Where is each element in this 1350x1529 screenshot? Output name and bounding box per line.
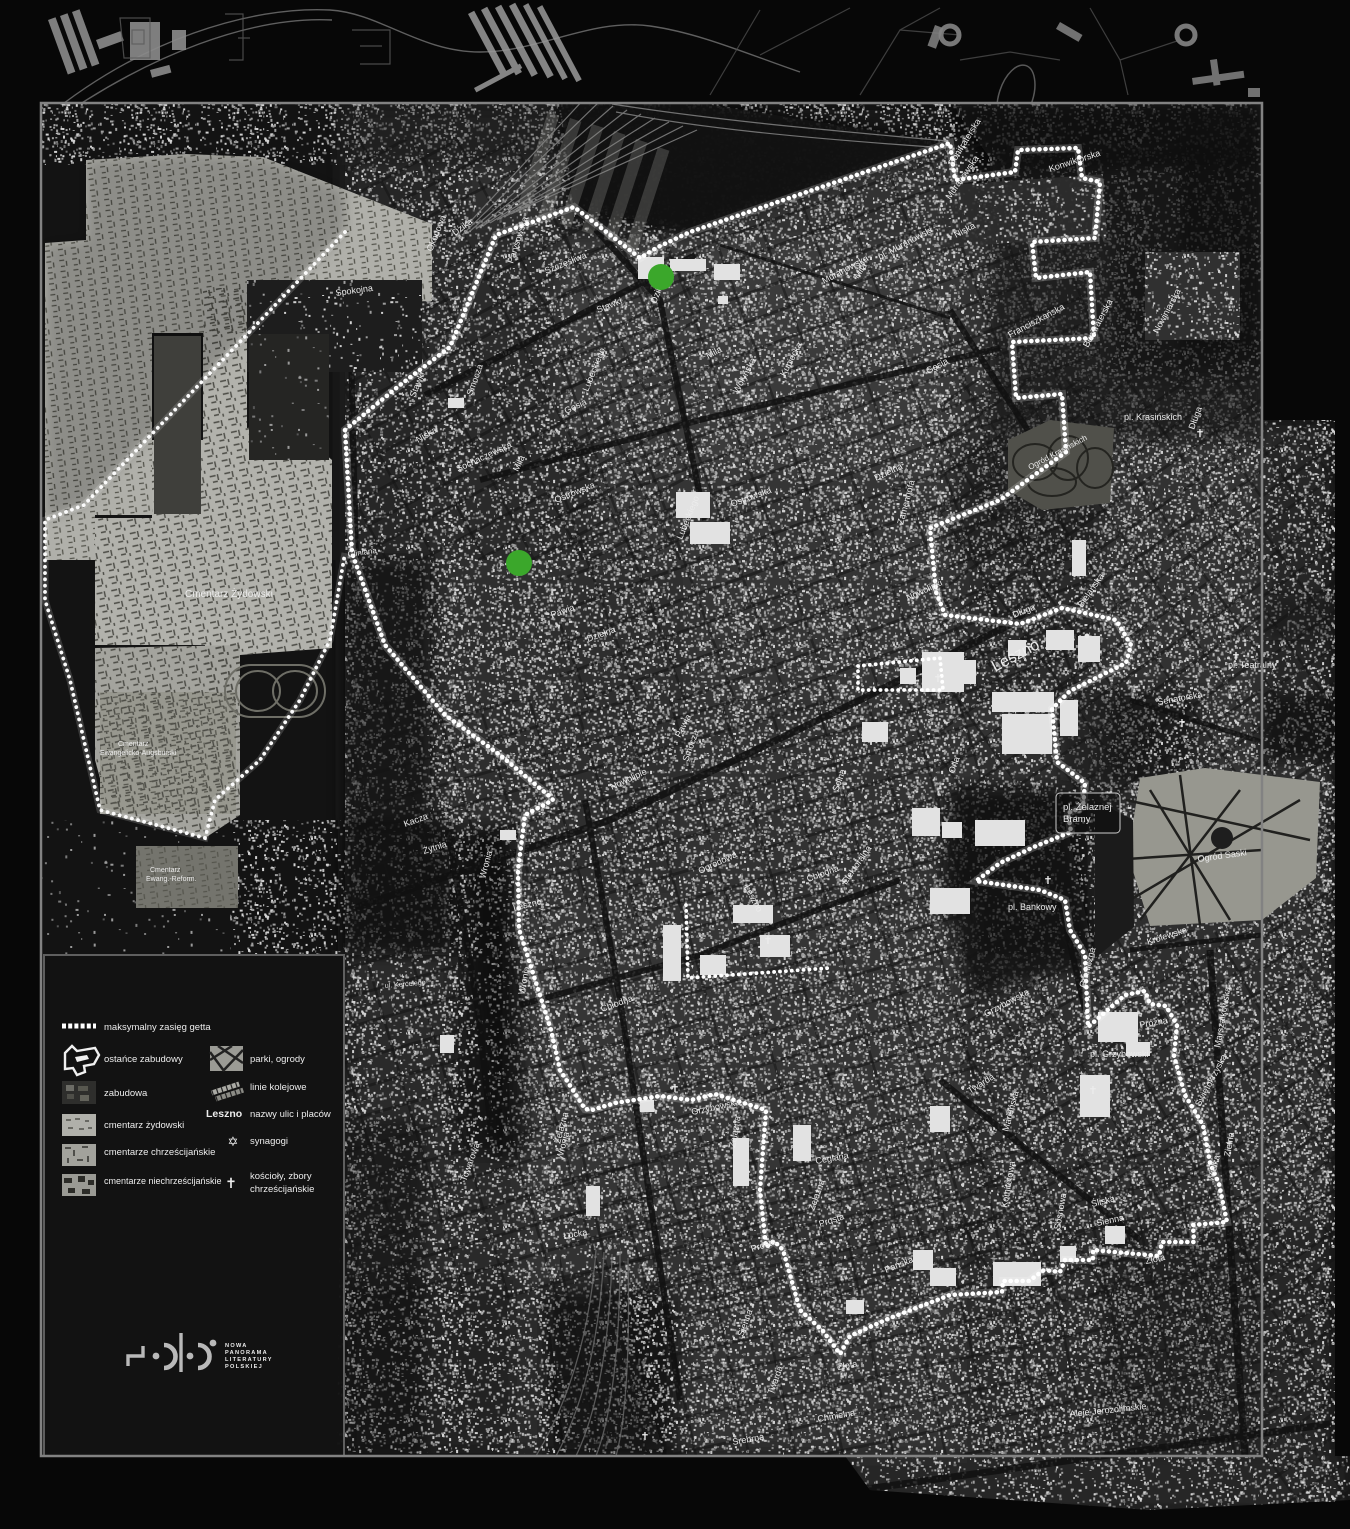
svg-text:✝: ✝ [763,935,772,947]
svg-text:zabudowa: zabudowa [104,1088,148,1099]
svg-text:nazwy ulic i placów: nazwy ulic i placów [250,1109,331,1120]
svg-text:ostańce zabudowy: ostańce zabudowy [104,1054,183,1065]
svg-text:Bramy: Bramy [1063,814,1091,825]
svg-text:linie kolejowe: linie kolejowe [250,1082,307,1093]
svg-text:chrześcijańskie: chrześcijańskie [250,1184,314,1195]
svg-text:✝: ✝ [1231,651,1240,663]
svg-text:✝: ✝ [1177,718,1186,730]
svg-text:Cmentarz: Cmentarz [118,741,149,748]
svg-text:✡: ✡ [1062,668,1070,679]
svg-text:LITERATURY: LITERATURY [225,1357,273,1363]
svg-text:✝: ✝ [640,1431,649,1443]
svg-text:kościoły, zbory: kościoły, zbory [250,1171,312,1182]
svg-text:Ewang.-Reform.: Ewang.-Reform. [146,876,197,883]
svg-text:cmentarze niechrześcijańskie: cmentarze niechrześcijańskie [104,1176,222,1186]
svg-text:✝: ✝ [933,673,942,685]
svg-text:✝: ✝ [1043,875,1052,887]
svg-text:PANORAMA: PANORAMA [225,1350,268,1356]
svg-text:pl. Grzybowski: pl. Grzybowski [1090,1049,1149,1059]
svg-text:✝: ✝ [670,1083,679,1095]
svg-text:✡: ✡ [228,1134,239,1149]
svg-text:parki, ogrody: parki, ogrody [250,1054,305,1065]
svg-text:✝: ✝ [225,1175,237,1191]
svg-text:Ewangelicko-Augsburski: Ewangelicko-Augsburski [100,750,177,757]
svg-text:NOWA: NOWA [225,1343,248,1349]
svg-text:✡: ✡ [946,1332,954,1343]
svg-text:Cmentarz Żydowski: Cmentarz Żydowski [185,587,273,600]
svg-text:Leszno: Leszno [206,1108,242,1120]
svg-text:synagogi: synagogi [250,1136,288,1147]
svg-text:cmentarz żydowski: cmentarz żydowski [104,1120,184,1131]
svg-text:maksymalny zasięg getta: maksymalny zasięg getta [104,1022,211,1033]
svg-text:pl. Bankowy: pl. Bankowy [1008,902,1057,912]
svg-text:cmentarze chrześcijańskie: cmentarze chrześcijańskie [104,1147,215,1158]
svg-text:✡: ✡ [834,536,842,547]
svg-text:✝: ✝ [1195,428,1204,440]
svg-text:POLSKIEJ: POLSKIEJ [225,1364,263,1370]
svg-text:pl. Krasińskich: pl. Krasińskich [1124,412,1182,422]
svg-text:pl. Żelaznej: pl. Żelaznej [1063,802,1112,813]
svg-text:Cmentarz: Cmentarz [150,867,181,874]
svg-text:✡: ✡ [1017,1038,1025,1049]
svg-text:✝: ✝ [1088,1085,1097,1097]
